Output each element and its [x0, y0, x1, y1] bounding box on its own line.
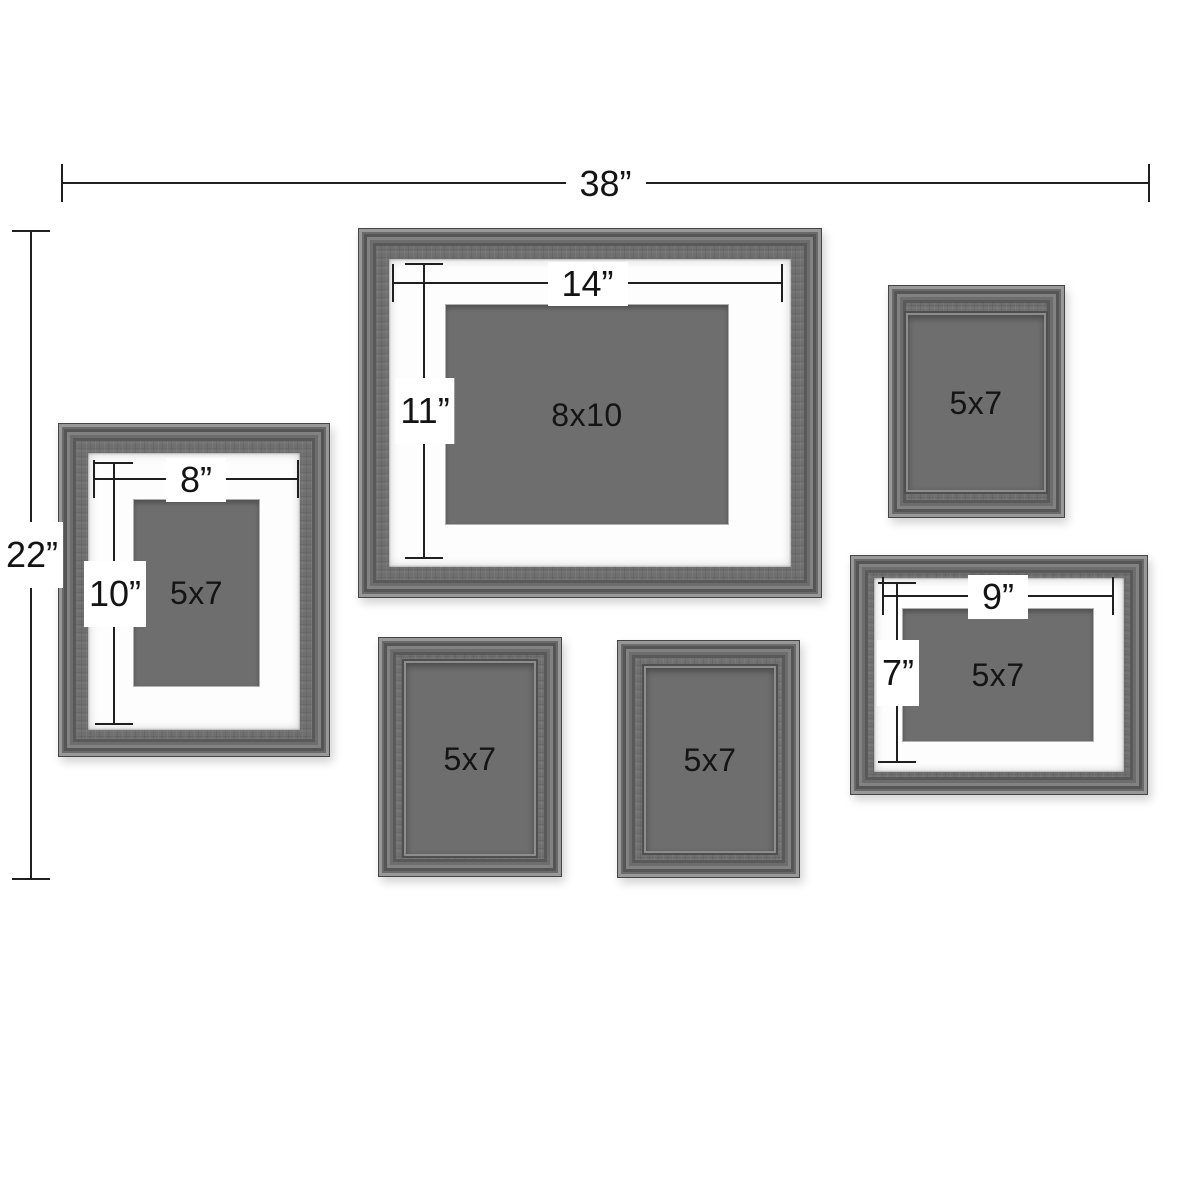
- overall-height-label: 22”: [1, 522, 63, 588]
- overall-height-dimension-line: 22”: [30, 231, 32, 879]
- frame-5x7-bottom-right-photo-size-label: 5x7: [683, 744, 736, 776]
- frame-5x7-left-photo-opening: 5x7: [134, 500, 259, 686]
- frame-5x7-right-photo-opening: 5x7: [903, 609, 1093, 741]
- frame-5x7-right-mat-height-dimension-line: 7”: [896, 583, 898, 762]
- frame-5x7-left-mat-height-label: 10”: [84, 561, 146, 627]
- frame-5x7-top-right: 5x7: [888, 285, 1065, 518]
- frame-5x7-bottom-right-photo-opening: 5x7: [646, 668, 774, 851]
- frame-8x10-mat-height-dimension-line: 11”: [423, 264, 425, 558]
- frame-5x7-bottom-left: 5x7: [378, 637, 562, 877]
- frame-5x7-right-mat-width-dimension-line: 9”: [883, 595, 1113, 597]
- frame-8x10-mat-width-label: 14”: [547, 262, 627, 306]
- dimension-diagram: 38” 22” 8x10 14” 11” 5x7 8” 10” 5x7: [0, 0, 1200, 1200]
- frame-5x7-bottom-right: 5x7: [617, 640, 800, 878]
- frame-5x7-right-mat-width-label: 9”: [968, 575, 1028, 619]
- overall-width-label: 38”: [565, 162, 645, 206]
- frame-5x7-top-right-photo-size-label: 5x7: [949, 387, 1002, 419]
- frame-8x10-mat-width-dimension-line: 14”: [393, 282, 782, 284]
- frame-5x7-left-mat-height-dimension-line: 10”: [113, 463, 115, 724]
- frame-5x7-bottom-left-photo-size-label: 5x7: [443, 743, 496, 775]
- frame-8x10-photo-opening: 8x10: [446, 305, 728, 524]
- frame-5x7-left-mat-width-label: 8”: [166, 458, 226, 502]
- frame-5x7-right-mat-height-label: 7”: [877, 640, 919, 706]
- overall-width-dimension-line: 38”: [62, 182, 1149, 184]
- frame-5x7-left-photo-size-label: 5x7: [170, 577, 223, 609]
- frame-5x7-left-mat-width-dimension-line: 8”: [94, 478, 298, 480]
- frame-5x7-bottom-left-photo-opening: 5x7: [406, 663, 534, 854]
- frame-8x10-mat-height-label: 11”: [395, 378, 454, 444]
- frame-5x7-top-right-photo-opening: 5x7: [908, 315, 1044, 490]
- frame-5x7-right-photo-size-label: 5x7: [971, 659, 1024, 691]
- frame-8x10-photo-size-label: 8x10: [551, 399, 622, 431]
